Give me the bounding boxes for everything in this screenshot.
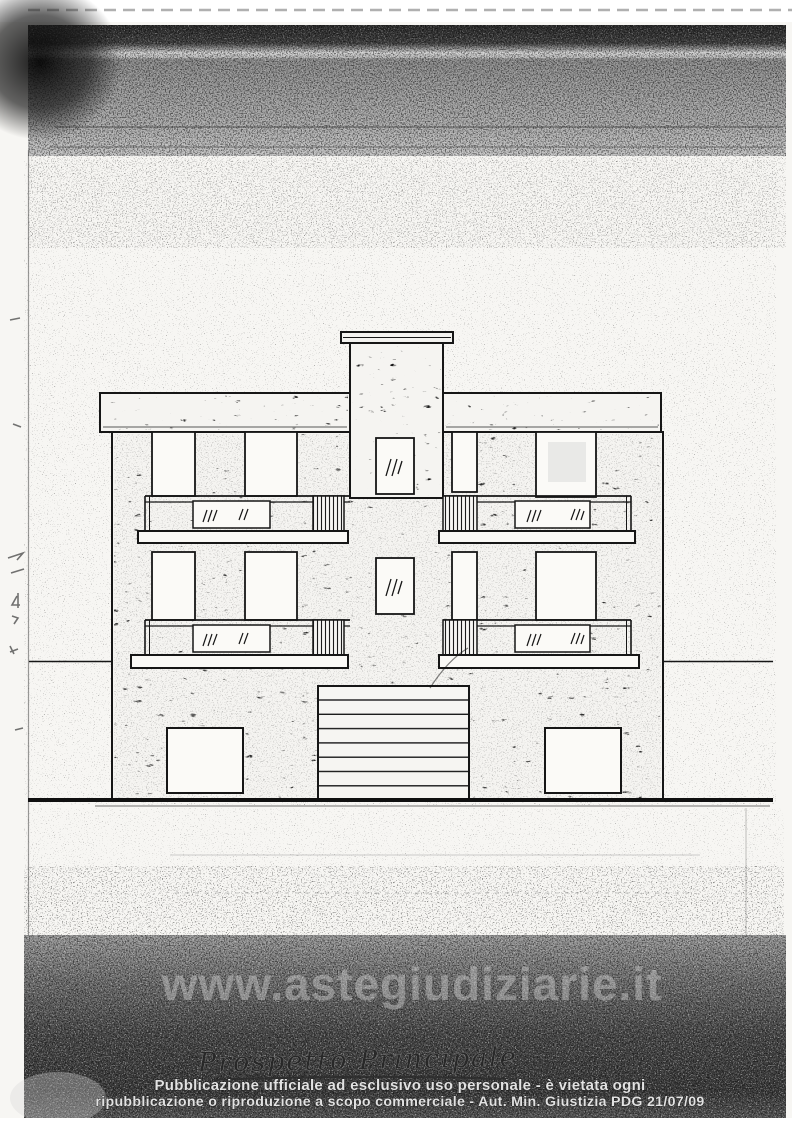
window: [152, 432, 195, 496]
ground-floor-window: [167, 728, 243, 793]
balcony-glass-panel: [193, 501, 270, 528]
window: [245, 432, 297, 496]
watermark-text: www.astegiudiziarie.it: [161, 958, 663, 1010]
below-ground-scan-area: [24, 808, 784, 938]
footer-notice: Pubblicazione ufficiale ad esclusivo uso…: [95, 1077, 704, 1110]
right-margin: [792, 0, 800, 1132]
window-smudge: [548, 442, 586, 482]
balcony-slab: [439, 531, 635, 543]
balcony-glass-panel: [193, 625, 270, 652]
balcony-glass-panel: [515, 625, 590, 652]
scanned-document-page: www.astegiudiziarie.it Prospetto Princip…: [0, 0, 800, 1132]
ground-floor-window: [545, 728, 621, 793]
footer-notice-line1: Pubblicazione ufficiale ad esclusivo uso…: [154, 1077, 645, 1094]
balcony-railing-hatch: [443, 496, 477, 531]
footer-notice-line2: ripubblicazione o riproduzione a scopo c…: [95, 1094, 704, 1110]
window: [452, 432, 477, 492]
caption-text: Prospetto Principale: [197, 1042, 518, 1079]
top-scan-band: [0, 0, 786, 248]
balcony-railing-hatch: [443, 620, 477, 655]
balcony-glass-panel: [515, 501, 590, 528]
balcony-slab: [131, 655, 348, 668]
window: [152, 552, 195, 620]
window: [536, 552, 596, 620]
balcony-slab: [439, 655, 639, 668]
central-entrance-stairs: [318, 686, 469, 800]
balcony-slab: [138, 531, 348, 543]
elevation-drawing-scan: www.astegiudiziarie.it Prospetto Princip…: [0, 0, 800, 1132]
balcony-railing-hatch: [313, 620, 344, 655]
window: [245, 552, 297, 620]
scan-light-spot: [10, 1072, 106, 1124]
balcony-railing-hatch: [313, 496, 344, 531]
bottom-margin: [0, 1118, 800, 1132]
window: [452, 552, 477, 620]
building-elevation: [28, 332, 773, 806]
